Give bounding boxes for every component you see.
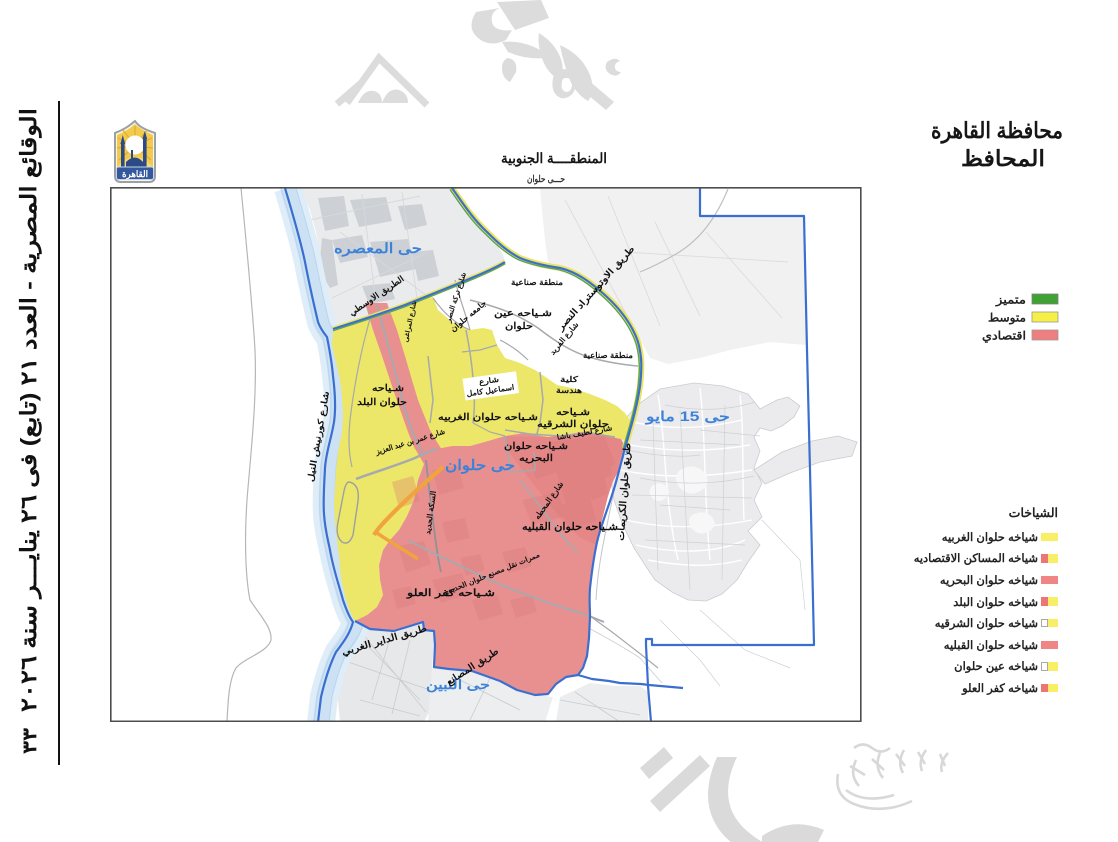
- svg-text:شـياحه: شـياحه: [556, 407, 590, 418]
- svg-text:محافظة القاهرة: محافظة القاهرة: [931, 118, 1063, 144]
- svg-text:القاهرة: القاهرة: [122, 169, 148, 180]
- svg-text:كلية: كلية: [560, 375, 578, 384]
- svg-text:شـياحه: شـياحه: [372, 383, 404, 394]
- svg-text:شـياحه عين: شـياحه عين: [494, 308, 552, 319]
- svg-text:الوقائع المصرية - العدد ٢١ (تا: الوقائع المصرية - العدد ٢١ (تابع) فى ٢٦ …: [16, 108, 42, 712]
- svg-text:المحافظ: المحافظ: [961, 146, 1045, 171]
- svg-text:شـياحه حلوان الغربيه: شـياحه حلوان الغربيه: [438, 412, 538, 423]
- svg-text:حلوان البلد: حلوان البلد: [357, 397, 407, 408]
- svg-text:البحريه: البحريه: [519, 453, 553, 464]
- svg-text:اقتصادي: اقتصادي: [982, 330, 1026, 344]
- svg-text:شـياحه حلوان: شـياحه حلوان: [504, 441, 568, 452]
- svg-text:منطقة صناعية: منطقة صناعية: [511, 278, 563, 287]
- svg-text:٣٣: ٣٣: [20, 727, 41, 754]
- svg-text:حى 15 مايو: حى 15 مايو: [645, 409, 730, 425]
- svg-text:متوسط: متوسط: [988, 312, 1026, 326]
- svg-text:منطقة صناعية: منطقة صناعية: [583, 351, 633, 360]
- svg-text:حـــى حلوان: حـــى حلوان: [527, 174, 565, 185]
- svg-text:هندسة: هندسة: [556, 386, 582, 395]
- svg-text:حى المعصره: حى المعصره: [334, 240, 422, 257]
- svg-text:متميز: متميز: [995, 295, 1026, 308]
- svg-text:حلوان: حلوان: [505, 321, 533, 332]
- svg-text:شـياحه حلوان القبليه: شـياحه حلوان القبليه: [522, 521, 618, 533]
- svg-text:حى حلوان: حى حلوان: [445, 458, 515, 474]
- svg-text:المنطقــــة الجنوبية: المنطقــــة الجنوبية: [501, 150, 607, 167]
